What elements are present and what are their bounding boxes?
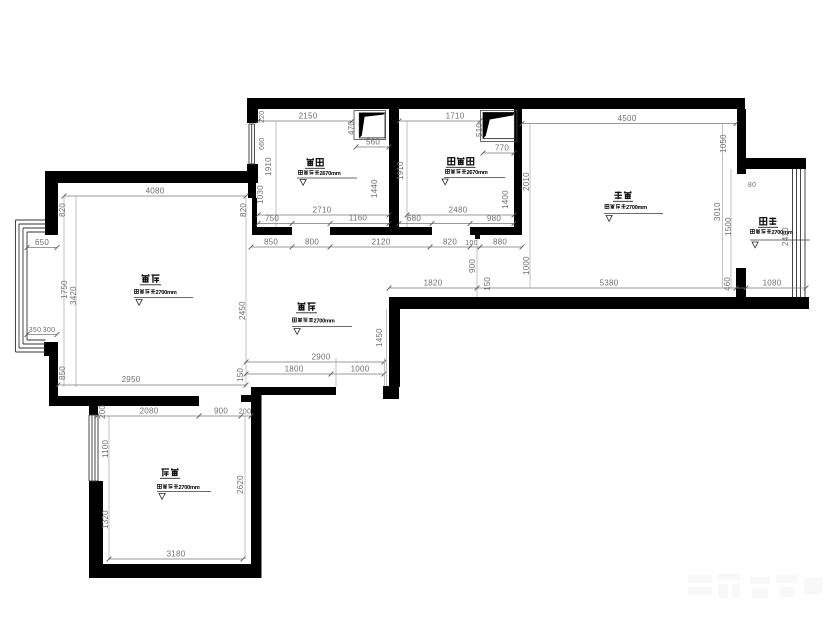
svg-text:150: 150 — [483, 277, 492, 291]
svg-text:350: 350 — [29, 327, 41, 334]
svg-text:1050: 1050 — [719, 134, 728, 153]
svg-text:1000: 1000 — [351, 365, 370, 374]
svg-text:100: 100 — [465, 240, 477, 247]
svg-text:850: 850 — [58, 366, 67, 380]
svg-text:3180: 3180 — [167, 550, 186, 559]
svg-text:470: 470 — [347, 121, 356, 135]
svg-text:1400: 1400 — [501, 190, 510, 209]
svg-text:1320: 1320 — [101, 510, 110, 529]
svg-text:1800: 1800 — [285, 365, 304, 374]
svg-text:1910: 1910 — [264, 157, 273, 176]
svg-text:510: 510 — [475, 123, 484, 137]
svg-text:2410: 2410 — [781, 227, 790, 246]
svg-text:150: 150 — [236, 368, 245, 382]
svg-text:1030: 1030 — [256, 185, 265, 204]
svg-text:4500: 4500 — [618, 114, 637, 123]
svg-text:2480: 2480 — [449, 206, 468, 215]
svg-text:3010: 3010 — [713, 202, 722, 221]
svg-text:300: 300 — [43, 327, 55, 334]
svg-text:2620: 2620 — [236, 475, 245, 494]
svg-text:460: 460 — [723, 277, 732, 291]
svg-text:900: 900 — [214, 407, 228, 416]
svg-text:1100: 1100 — [101, 439, 110, 458]
svg-text:900: 900 — [468, 259, 477, 273]
svg-text:2080: 2080 — [140, 407, 159, 416]
svg-text:1080: 1080 — [763, 279, 782, 288]
svg-text:650: 650 — [35, 238, 49, 247]
svg-text:1450: 1450 — [375, 328, 384, 347]
svg-text:80: 80 — [748, 182, 756, 189]
svg-text:3420: 3420 — [69, 286, 78, 305]
svg-text:1160: 1160 — [349, 214, 368, 223]
svg-text:2900: 2900 — [312, 353, 331, 362]
svg-text:980: 980 — [487, 214, 501, 223]
svg-text:850: 850 — [264, 238, 278, 247]
svg-text:750: 750 — [265, 214, 279, 223]
svg-text:820: 820 — [239, 203, 248, 217]
svg-text:2670mm: 2670mm — [467, 170, 488, 176]
svg-text:2700mm: 2700mm — [314, 318, 335, 324]
svg-text:880: 880 — [493, 238, 507, 247]
svg-text:1750: 1750 — [60, 280, 69, 299]
svg-text:560: 560 — [366, 138, 380, 147]
svg-text:2700mm: 2700mm — [179, 485, 200, 491]
svg-text:2120: 2120 — [372, 238, 391, 247]
svg-text:2700mm: 2700mm — [156, 290, 177, 296]
svg-text:800: 800 — [305, 238, 319, 247]
svg-text:1710: 1710 — [446, 112, 465, 121]
svg-text:2150: 2150 — [299, 112, 318, 121]
svg-text:770: 770 — [495, 144, 509, 153]
svg-text:200: 200 — [239, 409, 251, 416]
svg-text:660: 660 — [259, 138, 266, 150]
svg-text:2450: 2450 — [238, 301, 247, 320]
svg-text:820: 820 — [443, 238, 457, 247]
svg-text:1440: 1440 — [370, 179, 379, 198]
svg-text:220: 220 — [259, 111, 266, 123]
svg-text:2950: 2950 — [122, 375, 141, 384]
svg-text:2700mm: 2700mm — [626, 205, 647, 211]
svg-text:820: 820 — [58, 203, 67, 217]
svg-text:680: 680 — [407, 214, 421, 223]
svg-text:200: 200 — [98, 405, 107, 419]
svg-text:2670mm: 2670mm — [320, 171, 341, 177]
svg-text:2010: 2010 — [522, 172, 531, 191]
svg-text:4080: 4080 — [146, 187, 165, 196]
svg-text:1500: 1500 — [724, 217, 733, 236]
svg-text:1000: 1000 — [522, 256, 531, 275]
svg-text:1910: 1910 — [396, 161, 405, 180]
svg-text:5380: 5380 — [600, 279, 619, 288]
svg-text:2710: 2710 — [313, 206, 332, 215]
svg-text:1820: 1820 — [424, 279, 443, 288]
